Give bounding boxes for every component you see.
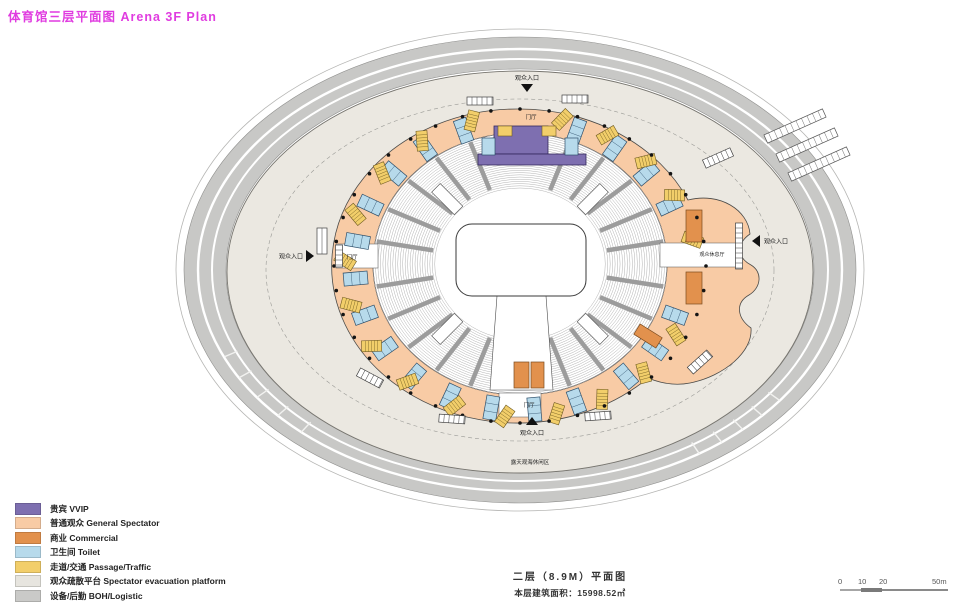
legend-label: 观众疏散平台 Spectator evacuation platform xyxy=(50,575,226,587)
lounge-label: 观众休息厅 xyxy=(699,251,724,258)
legend-swatch xyxy=(15,575,41,587)
entrance-label-bottom: 观众入口 xyxy=(520,430,544,437)
legend-label: 卫生间 Toilet xyxy=(50,546,100,558)
legend-item-passage-traffic: 走道/交通 Passage/Traffic xyxy=(15,561,226,572)
legend-label: 设备/后勤 BOH/Logistic xyxy=(50,590,143,602)
legend-swatch xyxy=(15,561,41,573)
legend-item-evacuation-platform: 观众疏散平台 Spectator evacuation platform xyxy=(15,576,226,587)
legend-label: 普通观众 General Spectator xyxy=(50,517,160,529)
foyer-label-left: 门厅 xyxy=(346,253,358,261)
plan-caption: 二层（8.9M）平面图 本层建筑面积：15998.52㎡ xyxy=(430,568,710,599)
entrance-label-top: 观众入口 xyxy=(515,75,539,82)
foyer-label-top: 门厅 xyxy=(525,113,537,121)
caption-area: 本层建筑面积：15998.52㎡ xyxy=(430,587,710,599)
entrance-label-left: 观众入口 xyxy=(279,254,303,261)
legend-item-vvip: 贵宾 VVIP xyxy=(15,503,226,514)
legend: 贵宾 VVIP 普通观众 General Spectator 商业 Commer… xyxy=(15,503,226,601)
legend-swatch xyxy=(15,503,41,515)
caption-title: 二层（8.9M）平面图 xyxy=(430,568,710,583)
arena-plan-page: 体育馆三层平面图 Arena 3F Plan 露天观海休闲区 xyxy=(0,0,960,615)
legend-item-toilet: 卫生间 Toilet xyxy=(15,547,226,558)
scalebar: 0 10 20 50m xyxy=(838,577,953,597)
legend-swatch xyxy=(15,517,41,529)
legend-swatch xyxy=(15,546,41,558)
scalebar-bar xyxy=(882,589,948,591)
scalebar-tick-10: 10 xyxy=(858,577,866,586)
legend-label: 走道/交通 Passage/Traffic xyxy=(50,561,151,573)
legend-swatch xyxy=(15,532,41,544)
legend-swatch xyxy=(15,590,41,602)
scalebar-bar xyxy=(861,588,882,592)
legend-label: 贵宾 VVIP xyxy=(50,503,89,515)
legend-item-commercial: 商业 Commercial xyxy=(15,532,226,543)
foyer-label-bottom: 门厅 xyxy=(523,401,535,409)
legend-label: 商业 Commercial xyxy=(50,532,118,544)
court-floor xyxy=(456,224,586,296)
leisure-area-label: 露天观海休闲区 xyxy=(511,458,550,466)
legend-item-general-spectator: 普通观众 General Spectator xyxy=(15,518,226,529)
scalebar-bar xyxy=(840,589,861,591)
entrance-label-right: 观众入口 xyxy=(764,239,788,246)
legend-item-boh-logistic: 设备/后勤 BOH/Logistic xyxy=(15,590,226,601)
scalebar-tick-50: 50m xyxy=(932,577,947,586)
scalebar-tick-0: 0 xyxy=(838,577,842,586)
scalebar-tick-20: 20 xyxy=(879,577,887,586)
